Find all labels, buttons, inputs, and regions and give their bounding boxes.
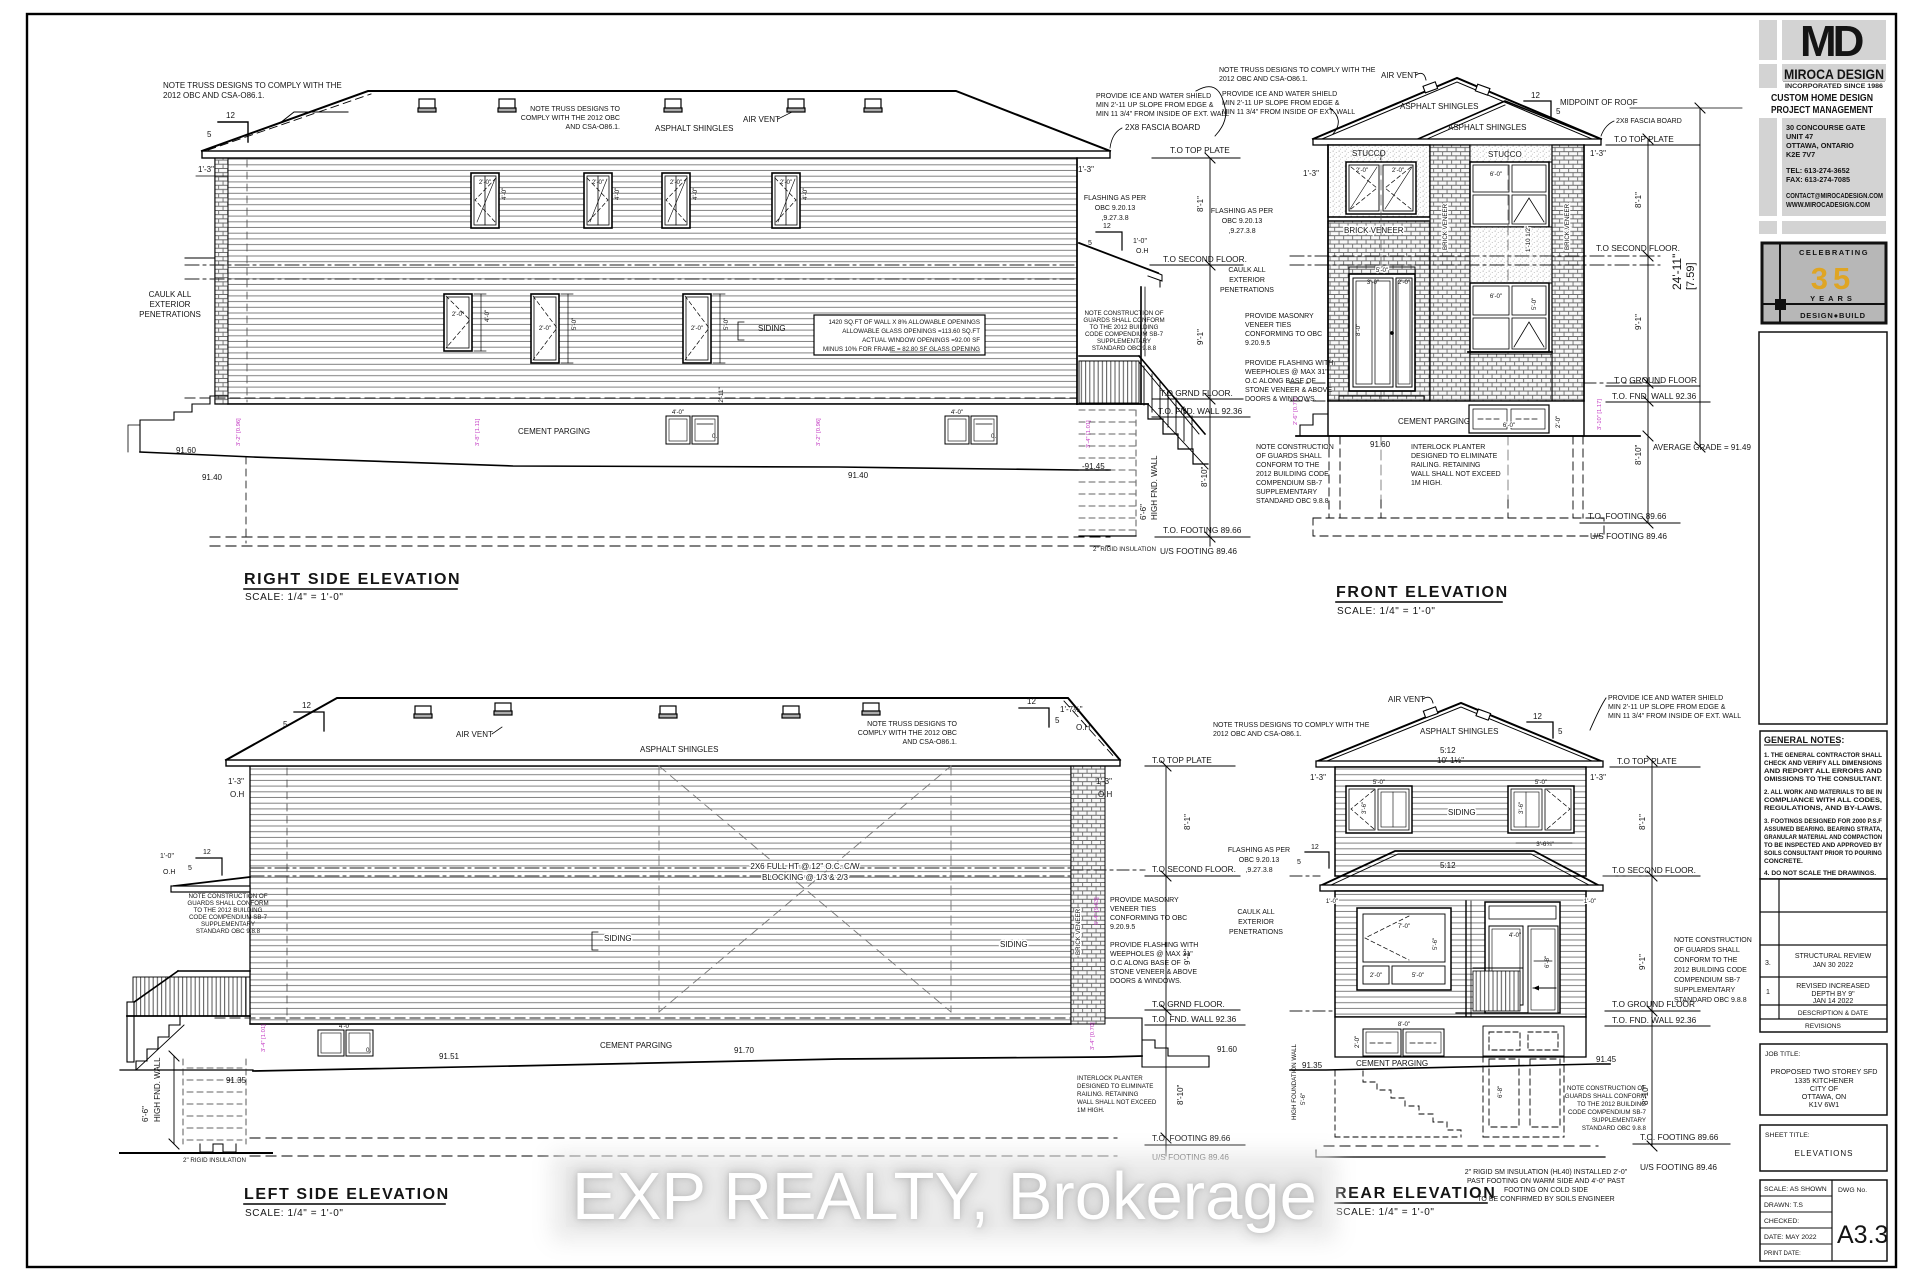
svg-text:CODE COMPENDIUM SB-7: CODE COMPENDIUM SB-7 bbox=[1568, 1109, 1647, 1116]
svg-text:91.35: 91.35 bbox=[226, 1076, 247, 1085]
svg-text:4'-0": 4'-0" bbox=[1509, 932, 1521, 939]
svg-text:8'-1": 8'-1" bbox=[1183, 814, 1192, 830]
svg-text:2X6 FULL HT @ 12" O.C. C/W: 2X6 FULL HT @ 12" O.C. C/W bbox=[750, 862, 860, 871]
svg-text:2'-0": 2'-0" bbox=[539, 325, 551, 332]
svg-text:A3.3: A3.3 bbox=[1837, 1221, 1888, 1249]
svg-text:3'-8" [1.11]: 3'-8" [1.11] bbox=[475, 418, 481, 446]
svg-text:T.O SECOND FLOOR.: T.O SECOND FLOOR. bbox=[1596, 243, 1680, 253]
svg-text:4'-0": 4'-0" bbox=[614, 188, 621, 200]
svg-text:TEL: 613-274-3652: TEL: 613-274-3652 bbox=[1786, 166, 1850, 175]
svg-text:RAILING. RETAINING: RAILING. RETAINING bbox=[1077, 1091, 1139, 1098]
svg-text:NOTE CONSTRUCTION OF: NOTE CONSTRUCTION OF bbox=[188, 893, 267, 900]
svg-text:2'-0": 2'-0" bbox=[691, 325, 703, 332]
svg-text:CODE COMPENDIUM SB-7: CODE COMPENDIUM SB-7 bbox=[1085, 331, 1164, 338]
svg-text:COMPENDIUM SB-7: COMPENDIUM SB-7 bbox=[1256, 480, 1322, 487]
svg-text:SHEET TITLE:: SHEET TITLE: bbox=[1765, 1132, 1810, 1139]
svg-text:BRICK VENEER: BRICK VENEER bbox=[1564, 203, 1571, 250]
svg-text:STANDARD OBC 9.8.8: STANDARD OBC 9.8.8 bbox=[1256, 498, 1329, 505]
svg-text:MIDPOINT OF ROOF: MIDPOINT OF ROOF bbox=[1560, 98, 1638, 107]
svg-text:MIN 11 3/4" FROM INSIDE OF EXT: MIN 11 3/4" FROM INSIDE OF EXT. WALL bbox=[1222, 109, 1355, 116]
svg-text:COMPLY WITH THE 2012 OBC: COMPLY WITH THE 2012 OBC bbox=[521, 115, 620, 122]
svg-text:5:12: 5:12 bbox=[1440, 746, 1456, 755]
svg-text:8'-1": 8'-1" bbox=[1638, 814, 1647, 830]
svg-text:ASPHALT SHINGLES: ASPHALT SHINGLES bbox=[655, 124, 733, 133]
svg-text:3'-10" [1.17]: 3'-10" [1.17] bbox=[1597, 399, 1603, 430]
svg-text:CAULK ALL: CAULK ALL bbox=[1237, 909, 1274, 916]
svg-text:4'-0": 4'-0" bbox=[692, 188, 699, 200]
svg-text:12: 12 bbox=[1027, 697, 1036, 706]
svg-text:T.O TOP PLATE: T.O TOP PLATE bbox=[1617, 756, 1677, 766]
svg-text:SUPPLEMENTARY: SUPPLEMENTARY bbox=[1592, 1117, 1646, 1124]
svg-text:,9.27.3.8: ,9.27.3.8 bbox=[1101, 215, 1128, 222]
svg-text:PROVIDE ICE AND WATER SHIELD: PROVIDE ICE AND WATER SHIELD bbox=[1096, 93, 1211, 100]
svg-text:,9.27.3.8: ,9.27.3.8 bbox=[1245, 867, 1272, 874]
svg-text:PROJECT MANAGEMENT: PROJECT MANAGEMENT bbox=[1771, 105, 1873, 116]
svg-text:JAN 30 2022: JAN 30 2022 bbox=[1813, 962, 1854, 969]
svg-text:DESIGNED TO ELIMINATE: DESIGNED TO ELIMINATE bbox=[1411, 453, 1498, 460]
svg-text:3'-6": 3'-6" bbox=[1361, 802, 1368, 814]
svg-text:OBC 9.20.13: OBC 9.20.13 bbox=[1222, 218, 1263, 225]
svg-text:CAULK ALL: CAULK ALL bbox=[149, 290, 192, 299]
svg-text:10'-1½": 10'-1½" bbox=[1437, 756, 1464, 765]
svg-text:CONFORM TO THE: CONFORM TO THE bbox=[1674, 957, 1738, 964]
svg-text:2'-0": 2'-0" bbox=[670, 179, 682, 186]
svg-text:PROVIDE ICE AND WATER SHIELD: PROVIDE ICE AND WATER SHIELD bbox=[1222, 91, 1337, 98]
svg-text:8'-1": 8'-1" bbox=[1196, 196, 1205, 212]
svg-text:NOTE CONSTRUCTION OF: NOTE CONSTRUCTION OF bbox=[1084, 310, 1163, 317]
svg-text:OTTAWA, ONTARIO: OTTAWA, ONTARIO bbox=[1786, 141, 1854, 150]
svg-text:6'-0": 6'-0" bbox=[1490, 171, 1502, 178]
svg-text:1'-10 1/2": 1'-10 1/2" bbox=[1525, 226, 1532, 252]
svg-text:3'-2" [0.96]: 3'-2" [0.96] bbox=[816, 418, 822, 446]
svg-text:SIDING: SIDING bbox=[1448, 808, 1476, 817]
svg-text:5: 5 bbox=[207, 130, 212, 139]
svg-text:SCALE: 1/4" = 1'-0": SCALE: 1/4" = 1'-0" bbox=[1336, 1207, 1435, 1218]
svg-text:2'-11": 2'-11" bbox=[718, 387, 725, 402]
svg-text:7'-0": 7'-0" bbox=[1398, 923, 1410, 930]
svg-text:3'-0": 3'-0" bbox=[1367, 279, 1379, 286]
svg-text:2" RIGID INSULATION: 2" RIGID INSULATION bbox=[1093, 546, 1156, 553]
svg-text:T.O. FND. WALL 92.36: T.O. FND. WALL 92.36 bbox=[1612, 1015, 1697, 1025]
svg-text:DOORS & WINDOWS.: DOORS & WINDOWS. bbox=[1245, 396, 1317, 403]
svg-text:O.H: O.H bbox=[1076, 723, 1090, 732]
svg-text:8'-10": 8'-10" bbox=[1176, 1084, 1185, 1105]
svg-text:91.60: 91.60 bbox=[176, 446, 197, 455]
svg-text:0.: 0. bbox=[366, 1047, 371, 1054]
svg-text:2'-0": 2'-0" bbox=[1398, 279, 1410, 286]
svg-text:OMISSIONS TO THE CONSULTANT.: OMISSIONS TO THE CONSULTANT. bbox=[1764, 776, 1882, 783]
svg-text:PROVIDE MASONRY: PROVIDE MASONRY bbox=[1245, 313, 1314, 320]
svg-text:30 CONCOURSE GATE: 30 CONCOURSE GATE bbox=[1786, 123, 1865, 132]
svg-text:4. DO NOT SCALE THE DRAWINGS.: 4. DO NOT SCALE THE DRAWINGS. bbox=[1764, 870, 1876, 877]
svg-text:1. THE GENERAL CONTRACTOR SHAL: 1. THE GENERAL CONTRACTOR SHALL bbox=[1764, 752, 1882, 759]
svg-text:UNIT 47: UNIT 47 bbox=[1786, 132, 1813, 141]
svg-text:EXTERIOR: EXTERIOR bbox=[150, 300, 191, 309]
svg-text:5'-0": 5'-0" bbox=[1412, 972, 1424, 979]
svg-text:91.45: 91.45 bbox=[1596, 1055, 1617, 1064]
svg-text:35: 35 bbox=[1811, 261, 1855, 296]
svg-text:EXTERIOR: EXTERIOR bbox=[1238, 919, 1274, 926]
svg-text:MIN 2'-11 UP SLOPE FROM EDGE &: MIN 2'-11 UP SLOPE FROM EDGE & bbox=[1608, 704, 1726, 711]
svg-text:COMPENDIUM SB-7: COMPENDIUM SB-7 bbox=[1674, 977, 1740, 984]
svg-text:12: 12 bbox=[1103, 223, 1111, 230]
svg-text:12: 12 bbox=[302, 701, 311, 710]
svg-text:24'-11": 24'-11" bbox=[1670, 254, 1684, 290]
svg-text:GUARDS SHALL CONFORM: GUARDS SHALL CONFORM bbox=[1083, 317, 1164, 324]
svg-text:3. FOOTINGS DESIGNED FOR 2000: 3. FOOTINGS DESIGNED FOR 2000 P.S.F bbox=[1764, 818, 1882, 825]
svg-text:1M HIGH.: 1M HIGH. bbox=[1411, 480, 1442, 487]
svg-text:TO BE CONFIRMED BY SOILS ENGIN: TO BE CONFIRMED BY SOILS ENGINEER bbox=[1477, 1196, 1614, 1203]
svg-text:INTERLOCK PLANTER: INTERLOCK PLANTER bbox=[1411, 444, 1485, 451]
svg-text:6'-0": 6'-0" bbox=[1490, 293, 1502, 300]
svg-text:2012 OBC AND CSA-O86.1.: 2012 OBC AND CSA-O86.1. bbox=[1213, 731, 1302, 738]
svg-text:K2E 7V7: K2E 7V7 bbox=[1786, 150, 1815, 159]
svg-text:6'-0": 6'-0" bbox=[1503, 422, 1515, 429]
svg-text:2'-0": 2'-0" bbox=[780, 179, 792, 186]
svg-text:FRONT ELEVATION: FRONT ELEVATION bbox=[1336, 584, 1509, 601]
svg-text:5: 5 bbox=[1556, 107, 1561, 116]
svg-text:SOILS CONSULTANT PRIOR TO POUR: SOILS CONSULTANT PRIOR TO POURING bbox=[1764, 850, 1882, 857]
svg-text:6'-8": 6'-8" bbox=[1544, 956, 1551, 968]
svg-text:U/S FOOTING 89.46: U/S FOOTING 89.46 bbox=[1160, 546, 1237, 556]
svg-text:PAST FOOTING ON WARM SIDE AND: PAST FOOTING ON WARM SIDE AND 4'-0" PAST bbox=[1467, 1178, 1626, 1185]
svg-text:LEFT SIDE ELEVATION: LEFT SIDE ELEVATION bbox=[244, 1186, 450, 1203]
svg-text:91.40: 91.40 bbox=[202, 473, 223, 482]
svg-text:ELEVATIONS: ELEVATIONS bbox=[1794, 1149, 1853, 1158]
svg-text:MD: MD bbox=[1800, 17, 1863, 66]
svg-text:6'-6": 6'-6" bbox=[141, 1106, 150, 1122]
svg-text:12: 12 bbox=[1311, 844, 1319, 851]
svg-text:O.C ALONG BASE OF: O.C ALONG BASE OF bbox=[1110, 960, 1181, 967]
svg-text:PROPOSED TWO STOREY SFD: PROPOSED TWO STOREY SFD bbox=[1770, 1067, 1877, 1076]
svg-text:5'-4" [9.63]: 5'-4" [9.63] bbox=[1094, 897, 1100, 925]
svg-text:91.35: 91.35 bbox=[1302, 1061, 1323, 1070]
svg-text:2012 BUILDING CODE: 2012 BUILDING CODE bbox=[1256, 471, 1329, 478]
svg-text:DESIGN●BUILD: DESIGN●BUILD bbox=[1800, 311, 1866, 320]
svg-text:4'-0": 4'-0" bbox=[484, 310, 491, 322]
svg-text:NOTE TRUSS DESIGNS TO COMPLY W: NOTE TRUSS DESIGNS TO COMPLY WITH THE bbox=[1219, 67, 1376, 74]
svg-text:1'-3": 1'-3" bbox=[1590, 149, 1606, 158]
svg-text:AIR VENT: AIR VENT bbox=[456, 730, 493, 739]
svg-text:91.70: 91.70 bbox=[734, 1046, 755, 1055]
svg-text:CEMENT PARGING: CEMENT PARGING bbox=[1356, 1059, 1428, 1068]
svg-text:SCALE: AS SHOWN: SCALE: AS SHOWN bbox=[1764, 1186, 1827, 1193]
svg-text:FLASHING AS PER: FLASHING AS PER bbox=[1228, 847, 1290, 854]
svg-text:3'-4" [0.70]: 3'-4" [0.70] bbox=[1090, 1022, 1096, 1050]
svg-text:FAX: 613-274-7085: FAX: 613-274-7085 bbox=[1786, 175, 1850, 184]
svg-text:ASPHALT SHINGLES: ASPHALT SHINGLES bbox=[1448, 123, 1526, 132]
svg-text:2" RIGID INSULATION: 2" RIGID INSULATION bbox=[183, 1157, 246, 1164]
svg-text:MIROCA DESIGN: MIROCA DESIGN bbox=[1784, 66, 1884, 82]
svg-text:MIN 2'-11 UP SLOPE FROM EDGE &: MIN 2'-11 UP SLOPE FROM EDGE & bbox=[1222, 100, 1340, 107]
svg-text:SIDING: SIDING bbox=[604, 934, 632, 943]
svg-text:MIN 11 3/4" FROM INSIDE OF EXT: MIN 11 3/4" FROM INSIDE OF EXT. WALL bbox=[1608, 713, 1741, 720]
svg-text:WWW.MIROCADESIGN.COM: WWW.MIROCADESIGN.COM bbox=[1786, 200, 1870, 209]
svg-text:ALLOWABLE GLASS OPENINGS =113.: ALLOWABLE GLASS OPENINGS =113.60 SQ.FT bbox=[842, 328, 980, 335]
svg-text:5'-0": 5'-0" bbox=[571, 318, 578, 330]
svg-text:JAN 14 2022: JAN 14 2022 bbox=[1813, 998, 1854, 1005]
svg-text:SUPPLEMENTARY: SUPPLEMENTARY bbox=[201, 921, 255, 928]
svg-text:8'-1": 8'-1" bbox=[1634, 192, 1643, 208]
svg-text:5'-6": 5'-6" bbox=[1300, 1093, 1307, 1105]
svg-text:2'-0": 2'-0" bbox=[479, 179, 491, 186]
svg-text:OF GUARDS SHALL: OF GUARDS SHALL bbox=[1256, 453, 1322, 460]
svg-text:T.O. FOOTING 89.66: T.O. FOOTING 89.66 bbox=[1588, 511, 1667, 521]
svg-text:3'-6¾": 3'-6¾" bbox=[1536, 841, 1553, 848]
svg-text:CUSTOM HOME DESIGN: CUSTOM HOME DESIGN bbox=[1771, 93, 1873, 104]
svg-text:O.H: O.H bbox=[1098, 790, 1112, 799]
svg-text:CHECK AND VERIFY ALL DIMENSION: CHECK AND VERIFY ALL DIMENSIONS bbox=[1764, 760, 1883, 767]
svg-text:JOB TITLE:: JOB TITLE: bbox=[1765, 1051, 1800, 1058]
svg-text:SCALE: 1/4" = 1'-0": SCALE: 1/4" = 1'-0" bbox=[1337, 606, 1436, 617]
svg-text:3'-4" [1.01]: 3'-4" [1.01] bbox=[261, 1024, 267, 1052]
svg-text:U/S FOOTING 89.46: U/S FOOTING 89.46 bbox=[1590, 531, 1667, 541]
svg-text:PENETRATIONS: PENETRATIONS bbox=[1229, 929, 1283, 936]
svg-text:1'-7½": 1'-7½" bbox=[1060, 705, 1083, 714]
svg-text:EXTERIOR: EXTERIOR bbox=[1229, 277, 1265, 284]
svg-text:T.O SECOND FLOOR.: T.O SECOND FLOOR. bbox=[1612, 865, 1696, 875]
svg-text:U/S FOOTING 89.46: U/S FOOTING 89.46 bbox=[1640, 1162, 1717, 1172]
svg-text:2012 OBC AND CSA-O86.1.: 2012 OBC AND CSA-O86.1. bbox=[163, 91, 264, 100]
svg-text:T.O GRND FLOOR.: T.O GRND FLOOR. bbox=[1160, 388, 1233, 398]
svg-text:CONTACT@MIROCADESIGN.COM: CONTACT@MIROCADESIGN.COM bbox=[1786, 191, 1883, 200]
svg-text:PROVIDE FLASHING WITH: PROVIDE FLASHING WITH bbox=[1245, 360, 1333, 367]
svg-text:GUARDS SHALL CONFORM: GUARDS SHALL CONFORM bbox=[187, 900, 268, 907]
svg-text:CAULK ALL: CAULK ALL bbox=[1228, 267, 1265, 274]
svg-text:OF GUARDS SHALL: OF GUARDS SHALL bbox=[1674, 947, 1740, 954]
svg-text:5'-0": 5'-0" bbox=[723, 318, 730, 330]
svg-text:2'-0": 2'-0" bbox=[1392, 167, 1404, 174]
svg-text:VENEER TIES: VENEER TIES bbox=[1245, 322, 1291, 329]
svg-text:CELEBRATING: CELEBRATING bbox=[1799, 248, 1869, 257]
svg-text:BRICK VENEER: BRICK VENEER bbox=[1442, 203, 1449, 250]
svg-text:NOTE CONSTRUCTION: NOTE CONSTRUCTION bbox=[1674, 937, 1752, 944]
svg-text:2'-0": 2'-0" bbox=[452, 311, 464, 318]
svg-text:AIR VENT: AIR VENT bbox=[1388, 695, 1425, 704]
svg-text:AVERAGE GRADE = 91.49: AVERAGE GRADE = 91.49 bbox=[1653, 443, 1751, 452]
svg-text:PENETRATIONS: PENETRATIONS bbox=[139, 310, 201, 319]
svg-text:2X8 FASCIA BOARD: 2X8 FASCIA BOARD bbox=[1616, 118, 1682, 125]
svg-text:COMPLIANCE WITH ALL CODES,: COMPLIANCE WITH ALL CODES, bbox=[1764, 797, 1882, 804]
svg-text:1'-3": 1'-3" bbox=[198, 165, 214, 174]
svg-text:COMPLY WITH THE 2012 OBC: COMPLY WITH THE 2012 OBC bbox=[858, 730, 957, 737]
svg-text:9.20.9.5: 9.20.9.5 bbox=[1245, 340, 1270, 347]
svg-text:12: 12 bbox=[1531, 91, 1540, 100]
svg-text:NOTE TRUSS DESIGNS TO: NOTE TRUSS DESIGNS TO bbox=[530, 106, 620, 113]
svg-text:T.O GROUND FLOOR: T.O GROUND FLOOR bbox=[1614, 375, 1697, 385]
svg-text:2'-0": 2'-0" bbox=[592, 179, 604, 186]
svg-text:CHECKED:: CHECKED: bbox=[1764, 1218, 1799, 1225]
svg-text:STANDARD OBC 9.8.8: STANDARD OBC 9.8.8 bbox=[1582, 1125, 1647, 1132]
svg-text:FLASHING AS PER: FLASHING AS PER bbox=[1084, 195, 1146, 202]
svg-text:O.H: O.H bbox=[163, 869, 175, 876]
svg-text:HIGH FND. WALL: HIGH FND. WALL bbox=[153, 1057, 162, 1122]
svg-text:4'-0": 4'-0" bbox=[802, 188, 809, 200]
svg-text:1'-0": 1'-0" bbox=[1133, 238, 1147, 245]
svg-text:5: 5 bbox=[1297, 859, 1301, 866]
svg-text:6'-8": 6'-8" bbox=[1497, 1086, 1504, 1098]
svg-text:12: 12 bbox=[1533, 712, 1542, 721]
svg-text:1'-0": 1'-0" bbox=[160, 853, 174, 860]
svg-text:PROVIDE FLASHING WITH: PROVIDE FLASHING WITH bbox=[1110, 942, 1198, 949]
svg-text:SIDING: SIDING bbox=[758, 324, 786, 333]
svg-text:CEMENT PARGING: CEMENT PARGING bbox=[518, 427, 590, 436]
svg-text:NOTE TRUSS DESIGNS TO COMPLY W: NOTE TRUSS DESIGNS TO COMPLY WITH THE bbox=[1213, 722, 1370, 729]
svg-text:DRAWN: T.S: DRAWN: T.S bbox=[1764, 1202, 1803, 1209]
svg-text:STRUCTURAL REVIEW: STRUCTURAL REVIEW bbox=[1795, 953, 1872, 960]
svg-text:9'-1": 9'-1" bbox=[1196, 329, 1205, 345]
svg-text:RIGHT SIDE ELEVATION: RIGHT SIDE ELEVATION bbox=[244, 571, 461, 588]
svg-text:T.O. FOOTING 89.66: T.O. FOOTING 89.66 bbox=[1163, 525, 1242, 535]
svg-text:5: 5 bbox=[1088, 240, 1092, 247]
svg-text:1'-3": 1'-3" bbox=[228, 777, 244, 786]
svg-text:SUPPLEMENTARY: SUPPLEMENTARY bbox=[1097, 338, 1151, 345]
svg-text:2012 OBC AND CSA-O86.1.: 2012 OBC AND CSA-O86.1. bbox=[1219, 76, 1308, 83]
svg-text:CONFORMING TO OBC: CONFORMING TO OBC bbox=[1245, 331, 1322, 338]
svg-text:2'-0": 2'-0" bbox=[1370, 972, 1382, 979]
svg-text:AND CSA-O86.1.: AND CSA-O86.1. bbox=[903, 739, 958, 746]
svg-text:9.20.9.5: 9.20.9.5 bbox=[1110, 924, 1135, 931]
svg-text:MIN 2'-11 UP SLOPE FROM EDGE &: MIN 2'-11 UP SLOPE FROM EDGE & bbox=[1096, 102, 1214, 109]
svg-text:1'-3": 1'-3" bbox=[1303, 169, 1319, 178]
svg-text:8'-10": 8'-10" bbox=[1641, 1084, 1650, 1105]
svg-text:TO BE INSPECTED AND APPROVED B: TO BE INSPECTED AND APPROVED BY bbox=[1764, 842, 1883, 849]
svg-text:STONE VENEER & ABOVE: STONE VENEER & ABOVE bbox=[1110, 969, 1197, 976]
svg-text:[7.59]: [7.59] bbox=[1685, 262, 1697, 290]
svg-text:K1V 6W1: K1V 6W1 bbox=[1809, 1100, 1839, 1109]
svg-text:BLOCKING @ 1/3 & 2/3: BLOCKING @ 1/3 & 2/3 bbox=[762, 873, 848, 882]
svg-text:3.: 3. bbox=[1765, 960, 1771, 967]
svg-text:INTERLOCK PLANTER: INTERLOCK PLANTER bbox=[1077, 1075, 1143, 1082]
svg-text:CONCRETE.: CONCRETE. bbox=[1764, 858, 1803, 865]
svg-text:8'-0": 8'-0" bbox=[1398, 1021, 1410, 1028]
svg-text:YEARS: YEARS bbox=[1810, 294, 1856, 303]
svg-text:1: 1 bbox=[1766, 989, 1770, 996]
svg-text:91.51: 91.51 bbox=[439, 1052, 460, 1061]
svg-text:2012 BUILDING CODE: 2012 BUILDING CODE bbox=[1674, 967, 1747, 974]
svg-text:NOTE TRUSS DESIGNS TO: NOTE TRUSS DESIGNS TO bbox=[867, 721, 957, 728]
svg-text:STUCCO: STUCCO bbox=[1488, 150, 1522, 159]
svg-text:-91.45: -91.45 bbox=[1082, 462, 1105, 471]
svg-text:T.O. FND. WALL 92.36: T.O. FND. WALL 92.36 bbox=[1158, 406, 1243, 416]
svg-text:T.O. FND. WALL 92.36: T.O. FND. WALL 92.36 bbox=[1152, 1014, 1237, 1024]
svg-text:SUPPLEMENTARY: SUPPLEMENTARY bbox=[1256, 489, 1318, 496]
svg-text:AIR VENT: AIR VENT bbox=[743, 115, 780, 124]
svg-text:PROVIDE ICE AND WATER SHIELD: PROVIDE ICE AND WATER SHIELD bbox=[1608, 695, 1723, 702]
svg-text:PENETRATIONS: PENETRATIONS bbox=[1220, 287, 1274, 294]
svg-text:WEEPHOLES @ MAX 31": WEEPHOLES @ MAX 31" bbox=[1245, 369, 1328, 376]
svg-text:VENEER TIES: VENEER TIES bbox=[1110, 906, 1156, 913]
svg-text:1'-3": 1'-3" bbox=[1590, 773, 1606, 782]
svg-text:91.40: 91.40 bbox=[848, 471, 869, 480]
svg-text:5: 5 bbox=[1055, 716, 1060, 725]
svg-text:91.60: 91.60 bbox=[1370, 440, 1391, 449]
svg-text:2'-0": 2'-0" bbox=[1354, 1036, 1361, 1048]
svg-text:8'-0": 8'-0" bbox=[1355, 324, 1362, 336]
svg-text:STONE VENEER & ABOVE: STONE VENEER & ABOVE bbox=[1245, 387, 1332, 394]
svg-text:RAILING. RETAINING: RAILING. RETAINING bbox=[1411, 462, 1481, 469]
svg-text:4'-0": 4'-0" bbox=[672, 409, 684, 416]
svg-text:2'-0": 2'-0" bbox=[1555, 416, 1562, 428]
svg-text:BRICK VENEER: BRICK VENEER bbox=[1075, 908, 1082, 955]
svg-text:GRANULAR MATERIAL AND COMPACTI: GRANULAR MATERIAL AND COMPACTION bbox=[1764, 834, 1882, 841]
svg-text:12: 12 bbox=[203, 849, 211, 856]
svg-text:5'-6": 5'-6" bbox=[1432, 938, 1439, 950]
svg-text:T.O SECOND FLOOR.: T.O SECOND FLOOR. bbox=[1152, 864, 1236, 874]
svg-text:TO THE 2012 BUILDING: TO THE 2012 BUILDING bbox=[1090, 324, 1159, 331]
svg-text:6'-6": 6'-6" bbox=[1139, 504, 1148, 520]
svg-text:8'-10": 8'-10" bbox=[1200, 466, 1209, 487]
svg-text:8'-10": 8'-10" bbox=[1634, 444, 1643, 465]
svg-text:TO THE 2012 BUILDING: TO THE 2012 BUILDING bbox=[1577, 1101, 1646, 1108]
svg-text:STANDARD OBC 9.8.8: STANDARD OBC 9.8.8 bbox=[1674, 997, 1747, 1004]
svg-text:REVISED INCREASED: REVISED INCREASED bbox=[1796, 983, 1870, 990]
svg-text:2. ALL WORK AND MATERIALS TO B: 2. ALL WORK AND MATERIALS TO BE IN bbox=[1764, 789, 1882, 796]
svg-text:PROVIDE MASONRY: PROVIDE MASONRY bbox=[1110, 897, 1179, 904]
svg-text:CEMENT PARGING: CEMENT PARGING bbox=[600, 1041, 672, 1050]
svg-text:ACTUAL WINDOW OPENINGS =92.00: ACTUAL WINDOW OPENINGS =92.00 SF bbox=[862, 337, 980, 344]
svg-text:1420 SQ.FT OF WALL X 8% ALLOWA: 1420 SQ.FT OF WALL X 8% ALLOWABLE OPENIN… bbox=[828, 319, 980, 326]
svg-text:3'-6": 3'-6" bbox=[1518, 802, 1525, 814]
svg-text:T.O. FOOTING 89.66: T.O. FOOTING 89.66 bbox=[1152, 1133, 1231, 1143]
svg-text:REAR ELEVATION: REAR ELEVATION bbox=[1335, 1185, 1496, 1202]
svg-text:5'-0": 5'-0" bbox=[1535, 779, 1547, 786]
svg-text:,9.27.3.8: ,9.27.3.8 bbox=[1228, 228, 1255, 235]
svg-text:DEPTH BY 9": DEPTH BY 9" bbox=[1811, 991, 1855, 998]
svg-text:PRINT DATE:: PRINT DATE: bbox=[1764, 1251, 1801, 1257]
svg-text:OBC 9.20.13: OBC 9.20.13 bbox=[1239, 857, 1280, 864]
svg-text:5: 5 bbox=[283, 720, 288, 729]
svg-text:1'-0": 1'-0" bbox=[1326, 898, 1338, 905]
svg-text:DWG No.: DWG No. bbox=[1838, 1187, 1867, 1194]
svg-text:1'-3": 1'-3" bbox=[1310, 773, 1326, 782]
svg-text:0.: 0. bbox=[712, 433, 717, 440]
svg-text:STANDARD OBC 9.8.8: STANDARD OBC 9.8.8 bbox=[1092, 345, 1157, 352]
svg-text:SCALE: 1/4" = 1'-0": SCALE: 1/4" = 1'-0" bbox=[245, 592, 344, 603]
svg-text:CEMENT PARGING: CEMENT PARGING bbox=[1398, 417, 1470, 426]
svg-text:HIGH FND. WALL: HIGH FND. WALL bbox=[1150, 455, 1159, 520]
svg-text:CONFORMING TO OBC: CONFORMING TO OBC bbox=[1110, 915, 1187, 922]
svg-text:AND CSA-O86.1.: AND CSA-O86.1. bbox=[566, 124, 621, 131]
svg-text:0.: 0. bbox=[991, 433, 996, 440]
svg-text:ASSUMED BEARING. BEARING STRAT: ASSUMED BEARING. BEARING STRATA, bbox=[1764, 826, 1882, 833]
svg-text:T.O TOP PLATE: T.O TOP PLATE bbox=[1170, 145, 1230, 155]
svg-text:9'-1": 9'-1" bbox=[1634, 314, 1643, 330]
svg-text:ASPHALT SHINGLES: ASPHALT SHINGLES bbox=[640, 745, 718, 754]
svg-text:3'-2" [0.96]: 3'-2" [0.96] bbox=[236, 418, 242, 446]
svg-text:STANDARD OBC 9.8.8: STANDARD OBC 9.8.8 bbox=[196, 928, 261, 935]
svg-text:WALL SHALL NOT EXCEED: WALL SHALL NOT EXCEED bbox=[1077, 1099, 1157, 1106]
svg-text:5'-0": 5'-0" bbox=[1376, 267, 1388, 274]
svg-text:NOTE CONSTRUCTION OF: NOTE CONSTRUCTION OF bbox=[1567, 1085, 1646, 1092]
svg-text:1'-3": 1'-3" bbox=[1096, 777, 1112, 786]
svg-text:DESIGNED TO ELIMINATE: DESIGNED TO ELIMINATE bbox=[1077, 1083, 1153, 1090]
svg-text:SUPPLEMENTARY: SUPPLEMENTARY bbox=[1674, 987, 1736, 994]
svg-text:T.O. FND. WALL 92.36: T.O. FND. WALL 92.36 bbox=[1612, 391, 1697, 401]
svg-text:AND REPORT ALL ERRORS AND: AND REPORT ALL ERRORS AND bbox=[1764, 768, 1882, 775]
svg-text:5'-0": 5'-0" bbox=[1373, 779, 1385, 786]
svg-text:5'-0": 5'-0" bbox=[1531, 298, 1538, 310]
svg-text:5: 5 bbox=[188, 865, 192, 872]
svg-text:OBC 9.20.13: OBC 9.20.13 bbox=[1095, 205, 1136, 212]
svg-text:AIR VENT: AIR VENT bbox=[1381, 71, 1418, 80]
svg-text:5: 5 bbox=[1558, 727, 1563, 736]
svg-text:HIGH FOUNDATION WALL: HIGH FOUNDATION WALL bbox=[1291, 1043, 1298, 1120]
svg-text:SIDING: SIDING bbox=[1000, 940, 1028, 949]
svg-text:NOTE CONSTRUCTION: NOTE CONSTRUCTION bbox=[1256, 444, 1334, 451]
svg-text:DOORS & WINDOWS.: DOORS & WINDOWS. bbox=[1110, 978, 1182, 985]
svg-text:1'-0": 1'-0" bbox=[1584, 898, 1596, 905]
